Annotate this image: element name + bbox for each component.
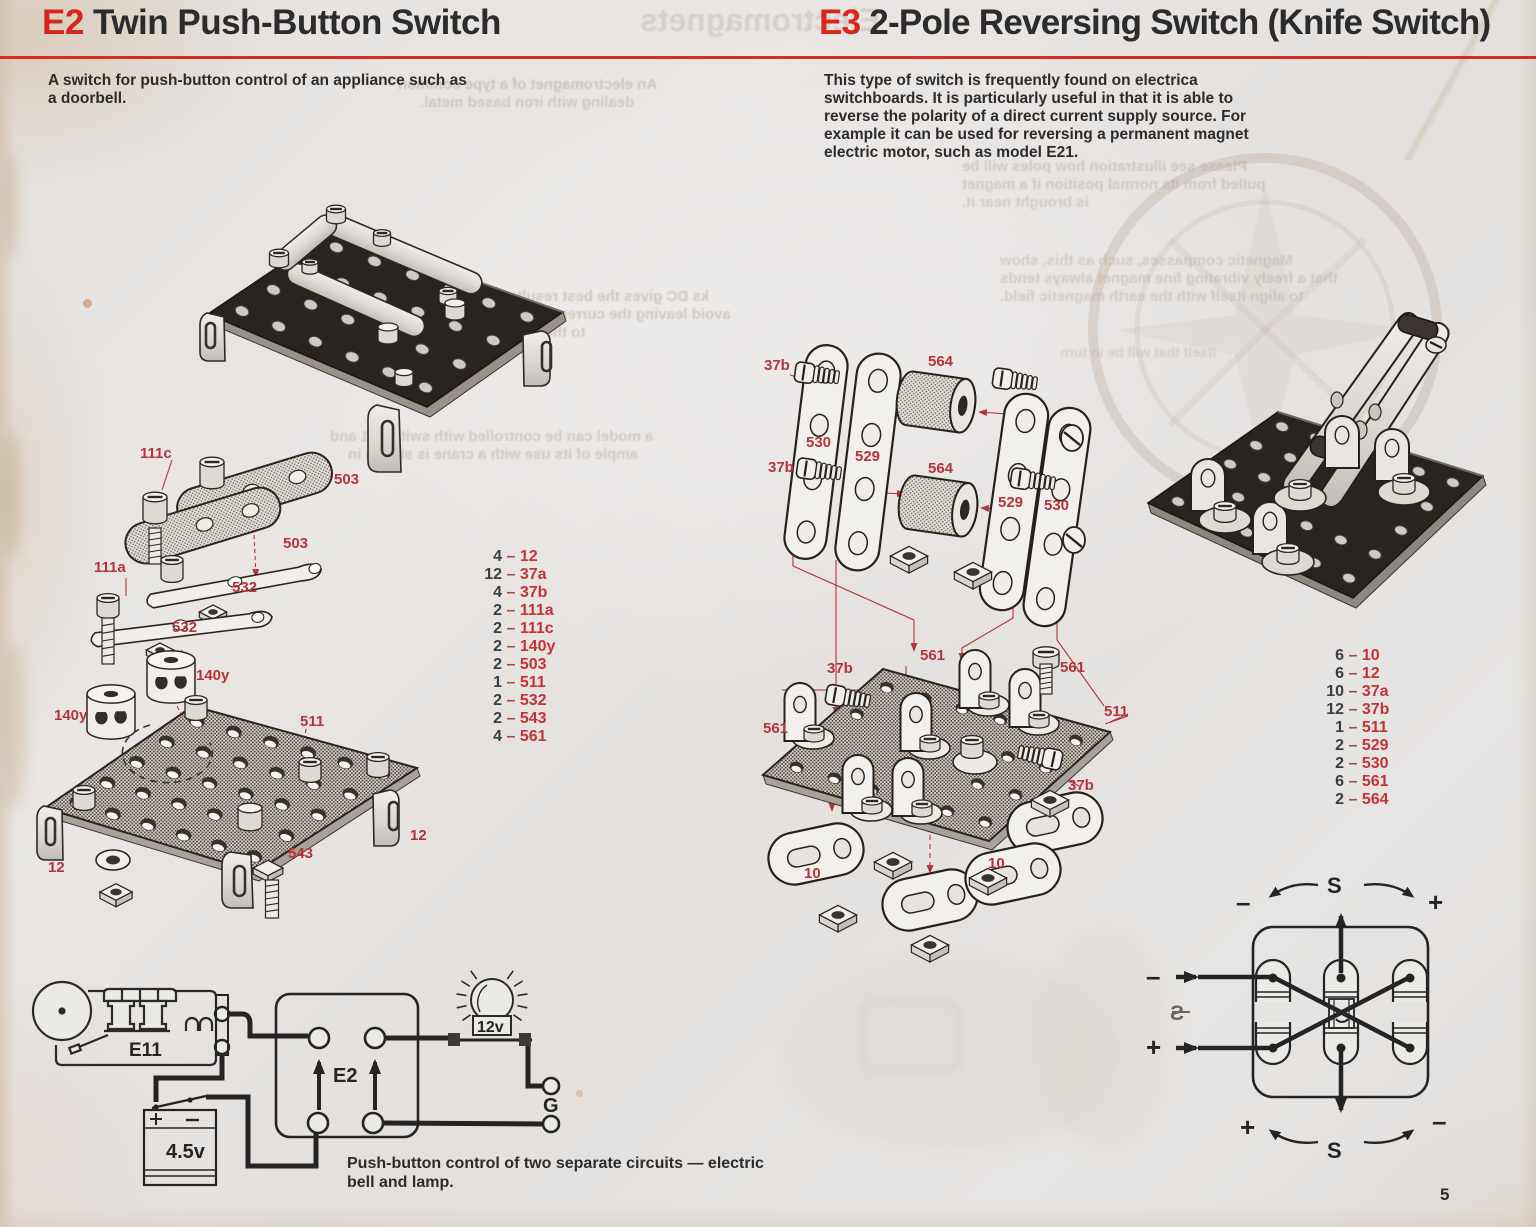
svg-text:543: 543 xyxy=(288,845,313,862)
svg-text:4.5v: 4.5v xyxy=(166,1141,206,1163)
svg-text:529: 529 xyxy=(998,494,1023,511)
svg-text:–: – xyxy=(1236,887,1250,917)
svg-text:E2: E2 xyxy=(333,1065,357,1087)
svg-text:530: 530 xyxy=(806,434,831,451)
svg-text:12v: 12v xyxy=(477,1019,504,1036)
svg-text:37b: 37b xyxy=(1068,777,1094,794)
svg-text:511: 511 xyxy=(300,713,324,730)
svg-text:111a: 111a xyxy=(94,559,126,576)
svg-text:S: S xyxy=(1327,873,1342,898)
svg-text:10: 10 xyxy=(988,855,1005,872)
svg-text:561: 561 xyxy=(763,720,788,737)
svg-text:–: – xyxy=(1146,961,1160,991)
svg-text:+: + xyxy=(1428,887,1443,917)
svg-text:37b: 37b xyxy=(827,660,853,677)
svg-text:140y: 140y xyxy=(196,667,230,684)
svg-text:503: 503 xyxy=(283,535,308,552)
svg-text:529: 529 xyxy=(855,448,880,465)
svg-text:E11: E11 xyxy=(129,1040,162,1061)
svg-text:511: 511 xyxy=(1104,703,1128,720)
svg-text:564: 564 xyxy=(928,460,954,477)
svg-text:12: 12 xyxy=(48,859,65,876)
svg-text:532: 532 xyxy=(232,579,257,596)
svg-text:37b: 37b xyxy=(764,357,790,374)
svg-text:532: 532 xyxy=(172,619,197,636)
svg-text:G: G xyxy=(543,1095,559,1117)
svg-text:10: 10 xyxy=(804,865,821,882)
svg-text:+: + xyxy=(1146,1032,1161,1062)
svg-text:12: 12 xyxy=(410,827,427,844)
svg-text:111c: 111c xyxy=(140,445,172,462)
svg-text:530: 530 xyxy=(1044,497,1069,514)
svg-text:561: 561 xyxy=(920,647,945,664)
svg-text:S: S xyxy=(1170,1002,1184,1025)
svg-text:564: 564 xyxy=(928,353,954,370)
svg-text:+: + xyxy=(1240,1112,1255,1142)
svg-text:S: S xyxy=(1327,1138,1342,1163)
svg-text:37b: 37b xyxy=(768,459,794,476)
svg-text:503: 503 xyxy=(334,471,359,488)
svg-text:–: – xyxy=(1432,1106,1446,1136)
svg-text:561: 561 xyxy=(1060,659,1085,676)
svg-text:140y: 140y xyxy=(54,707,88,724)
